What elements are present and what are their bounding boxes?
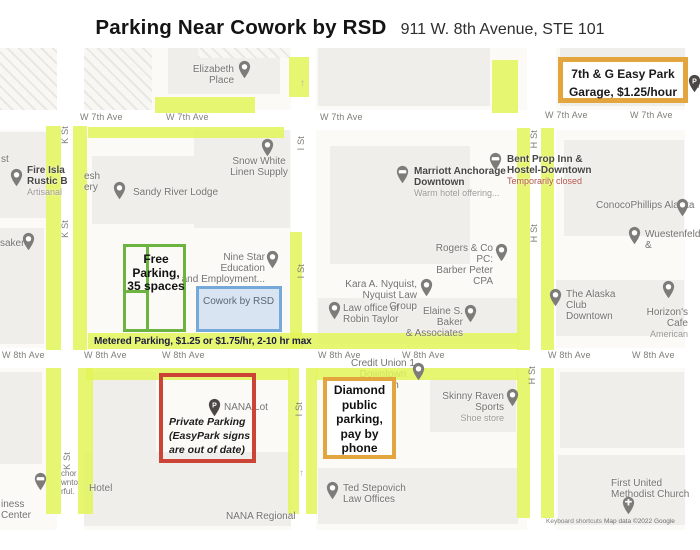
parking-pin-icon[interactable]: P: [688, 74, 700, 93]
map-building: [318, 48, 490, 106]
parking-highlight-strip: [46, 126, 61, 350]
metered-parking-text: Metered Parking, $1.25 or $1.75/hr, 2-10…: [94, 336, 354, 347]
private-parking-text: Private Parking (EasyPark signs are out …: [169, 415, 254, 457]
place-label-wuestenfeld[interactable]: Wuestenfeld &: [645, 229, 700, 251]
place-name: saker: [0, 238, 24, 249]
map-data-attribution: Map data ©2022 Google: [604, 518, 675, 525]
place-pin-icon[interactable]: [328, 301, 341, 320]
lodging-pin-icon[interactable]: [34, 472, 47, 491]
place-name: Wuestenfeld &: [645, 229, 700, 251]
diamond-parking-annotation: Diamond public parking, pay by phone: [323, 377, 396, 459]
street-label: W 7th Ave: [320, 112, 363, 122]
cowork-label[interactable]: Cowork by RSD: [203, 296, 274, 307]
place-name: Law office of Robin Taylor: [343, 303, 399, 325]
place-label-fire-island[interactable]: Fire Isla Rustic BArtisanal: [27, 165, 73, 197]
place-name: Hotel: [89, 483, 112, 494]
map-building: [194, 130, 290, 228]
place-name: st: [1, 154, 9, 165]
lodging-pin-icon[interactable]: [489, 152, 502, 171]
restaurant-pin-icon[interactable]: [10, 168, 23, 187]
place-label-nine-star[interactable]: Nine Star Education and Employment...: [181, 252, 265, 285]
place-pin-icon[interactable]: [238, 60, 251, 79]
place-subtitle: American: [624, 329, 688, 339]
place-label-skinny-raven[interactable]: Skinny Raven SportsShoe store: [424, 391, 504, 423]
place-name: NANA Regional: [226, 511, 295, 522]
parking-highlight-strip: [290, 232, 302, 348]
place-name: Skinny Raven Sports: [442, 391, 504, 413]
parking-highlight-strip: [288, 368, 299, 514]
place-label-hotel[interactable]: Hotel: [89, 483, 123, 494]
place-name: Snow White Linen Supply: [230, 156, 288, 178]
street-label: W 8th Ave: [632, 350, 675, 360]
place-subtitle: Warm hotel offering...: [414, 188, 506, 198]
place-name: Ted Stepovich Law Offices: [343, 483, 406, 505]
easy-park-text: 7th & G Easy Park Garage, $1.25/hour: [569, 67, 677, 99]
map-building: [0, 372, 42, 464]
place-pin-icon[interactable]: [22, 232, 35, 251]
parking-highlight-strip: [492, 60, 518, 113]
parking-highlight-strip: [306, 368, 317, 514]
street-road: [685, 48, 700, 530]
place-name: Bent Prop Inn & Hostel-Downtown: [507, 154, 591, 176]
restaurant-pin-icon[interactable]: [662, 280, 675, 299]
place-name: Elaine S. Baker & Associates: [406, 306, 463, 339]
place-name: Rogers & Co PC: Barber Peter CPA: [436, 243, 493, 287]
parking-highlight-strip: [289, 57, 309, 97]
place-label-elaine-baker[interactable]: Elaine S. Baker & Associates: [399, 306, 463, 339]
street-label: W 8th Ave: [84, 350, 127, 360]
place-name: The Alaska Club Downtown: [566, 289, 615, 322]
store-pin-icon[interactable]: [506, 388, 519, 407]
street-label: W 8th Ave: [318, 350, 361, 360]
page-title: Parking Near Cowork by RSD: [95, 16, 386, 40]
street-label: W 8th Ave: [548, 350, 591, 360]
bank-pin-icon[interactable]: [412, 362, 425, 381]
street-label: I St: [296, 136, 306, 150]
private-parking-annotation: Private Parking (EasyPark signs are out …: [159, 373, 256, 463]
cowork-highlight-box: Cowork by RSD: [196, 286, 282, 332]
parking-highlight-strip: [46, 368, 61, 514]
place-name: chor wnto rful.: [61, 469, 78, 496]
place-pin-icon[interactable]: [326, 481, 339, 500]
street-label: W 8th Ave: [402, 350, 445, 360]
construction-hatch-area: [198, 48, 290, 58]
keyboard-shortcuts-link[interactable]: Keyboard shortcuts: [546, 518, 602, 525]
street-label: I St: [296, 264, 306, 278]
street-label: H St: [527, 366, 537, 384]
place-name: Nine Star Education and Employment...: [182, 252, 265, 285]
place-pin-icon[interactable]: [628, 226, 641, 245]
place-pin-icon[interactable]: [676, 198, 689, 217]
easy-park-annotation: 7th & G Easy Park Garage, $1.25/hour: [558, 57, 688, 103]
street-label: W 7th Ave: [80, 112, 123, 122]
place-label-snow-white-linen[interactable]: Snow White Linen Supply: [221, 156, 297, 178]
street-label: K St: [60, 126, 70, 144]
education-pin-icon[interactable]: [266, 250, 279, 269]
place-label-ted-stepovich[interactable]: Ted Stepovich Law Offices: [343, 483, 413, 505]
place-label-sandy-river-lodge[interactable]: Sandy River Lodge: [133, 187, 243, 198]
street-label: W 7th Ave: [166, 112, 209, 122]
map-canvas[interactable]: Parking Near Cowork by RSD 911 W. 8th Av…: [0, 0, 700, 550]
place-label-horizons-cafe[interactable]: Horizon's CafeAmerican: [624, 307, 688, 339]
place-subtitle: Shoe store: [424, 413, 504, 423]
lodging-pin-icon[interactable]: [396, 165, 409, 184]
address-subtitle: 911 W. 8th Avenue, STE 101: [401, 21, 605, 39]
diamond-parking-text: Diamond public parking, pay by phone: [327, 381, 392, 456]
church-pin-icon[interactable]: [622, 496, 635, 515]
place-label-elizabeth-place[interactable]: Elizabeth Place: [166, 64, 234, 86]
parking-highlight-strip: [73, 126, 87, 350]
place-subtitle: Artisanal: [27, 187, 73, 197]
parking-highlight-strip: [541, 368, 554, 518]
place-name: esh ery: [84, 171, 100, 193]
place-pin-icon[interactable]: [495, 243, 508, 262]
place-label-fire-island-frag[interactable]: esh ery: [84, 171, 104, 193]
office-pin-icon[interactable]: [464, 304, 477, 323]
map-building: [560, 372, 684, 448]
street-label: I St: [294, 402, 304, 416]
one-way-arrow-icon: ↑: [299, 468, 304, 479]
street-label: K St: [60, 220, 70, 238]
place-pin-icon[interactable]: [420, 278, 433, 297]
place-subtitle: Temporarily closed: [507, 176, 595, 186]
place-pin-icon[interactable]: [113, 181, 126, 200]
place-label-bent-prop[interactable]: Bent Prop Inn & Hostel-DowntownTemporari…: [507, 154, 595, 186]
place-name: Elizabeth Place: [193, 64, 234, 86]
svg-text:P: P: [692, 79, 697, 86]
place-label-hotel-frag[interactable]: chor wnto rful.: [61, 469, 83, 496]
header: Parking Near Cowork by RSD 911 W. 8th Av…: [0, 0, 700, 48]
parking-highlight-strip: [155, 97, 255, 113]
one-way-arrow-icon: ↑: [300, 78, 305, 89]
place-name: iness Center: [1, 499, 31, 521]
street-label: W 8th Ave: [162, 350, 205, 360]
parking-highlight-strip: [88, 127, 284, 138]
place-name: Horizon's Cafe: [647, 307, 688, 329]
street-label: H St: [529, 130, 539, 148]
street-label: W 7th Ave: [545, 110, 588, 120]
street-label: W 7th Ave: [630, 110, 673, 120]
place-name: Sandy River Lodge: [133, 187, 218, 198]
place-label-st-frag[interactable]: st: [1, 154, 15, 165]
place-pin-icon[interactable]: [261, 138, 274, 157]
place-name: Fire Isla Rustic B: [27, 165, 68, 187]
place-label-business-center[interactable]: iness Center: [1, 499, 35, 521]
street-label: W 8th Ave: [2, 350, 45, 360]
street-label: H St: [529, 224, 539, 242]
free-parking-text: Free Parking, 35 spaces: [126, 253, 186, 294]
place-label-nana-regional[interactable]: NANA Regional: [226, 511, 306, 522]
street-label: K St: [62, 452, 72, 470]
place-label-robin-taylor[interactable]: Law office of Robin Taylor: [343, 303, 407, 325]
place-pin-icon[interactable]: [549, 288, 562, 307]
